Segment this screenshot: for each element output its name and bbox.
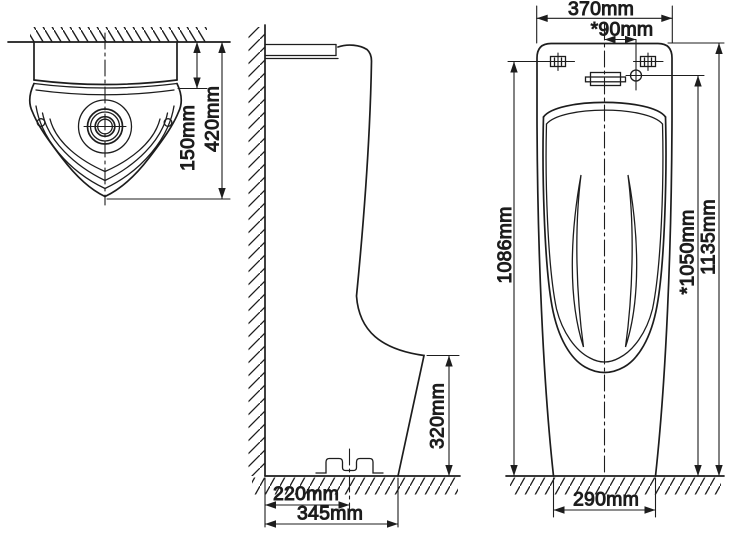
bowl-leaf-right [626, 175, 637, 347]
top-view: 150mm 420mm [8, 27, 230, 205]
mount-bracket [265, 45, 338, 59]
dim-label-1086mm: 1086mm [494, 206, 516, 283]
dim-1086mm: 1086mm [494, 62, 516, 477]
ceiling-hatch [30, 27, 207, 42]
dim-label-1050mm: *1050mm [677, 210, 699, 295]
outlet-spud [586, 73, 626, 86]
dim-label-370mm: 370mm [568, 0, 634, 20]
dim-label-90mm: *90mm [591, 19, 654, 41]
dim-label-420mm: 420mm [202, 86, 224, 152]
mount-hole-right [634, 53, 664, 71]
dim-label-1135mm: 1135mm [698, 199, 720, 275]
dim-label-320mm: 320mm [427, 383, 449, 449]
body-profile [338, 45, 424, 476]
water-inlet [626, 40, 704, 91]
dim-420mm: 420mm [107, 42, 230, 199]
mount-hole-left [508, 53, 575, 71]
technical-drawing-page: 150mm 420mm [0, 0, 748, 539]
front-view: 370mm *90mm 1086mm *1050mm 1135mm [494, 0, 724, 517]
dim-1050mm: *1050mm [677, 76, 699, 477]
dim-345mm: 345mm [265, 503, 398, 525]
side-view: 320mm 220mm 345mm [249, 25, 461, 527]
bowl-leaf-left [572, 175, 583, 347]
dim-320mm: 320mm [427, 356, 460, 477]
dim-label-150mm: 150mm [177, 105, 199, 171]
dim-label-345mm: 345mm [297, 503, 363, 525]
dim-label-290mm: 290mm [573, 489, 639, 511]
urinal-dimension-drawing: 150mm 420mm [0, 0, 748, 539]
wall-hatch [249, 27, 265, 476]
drawing-root: 150mm 420mm [8, 0, 724, 527]
dim-90mm: *90mm [591, 19, 654, 41]
